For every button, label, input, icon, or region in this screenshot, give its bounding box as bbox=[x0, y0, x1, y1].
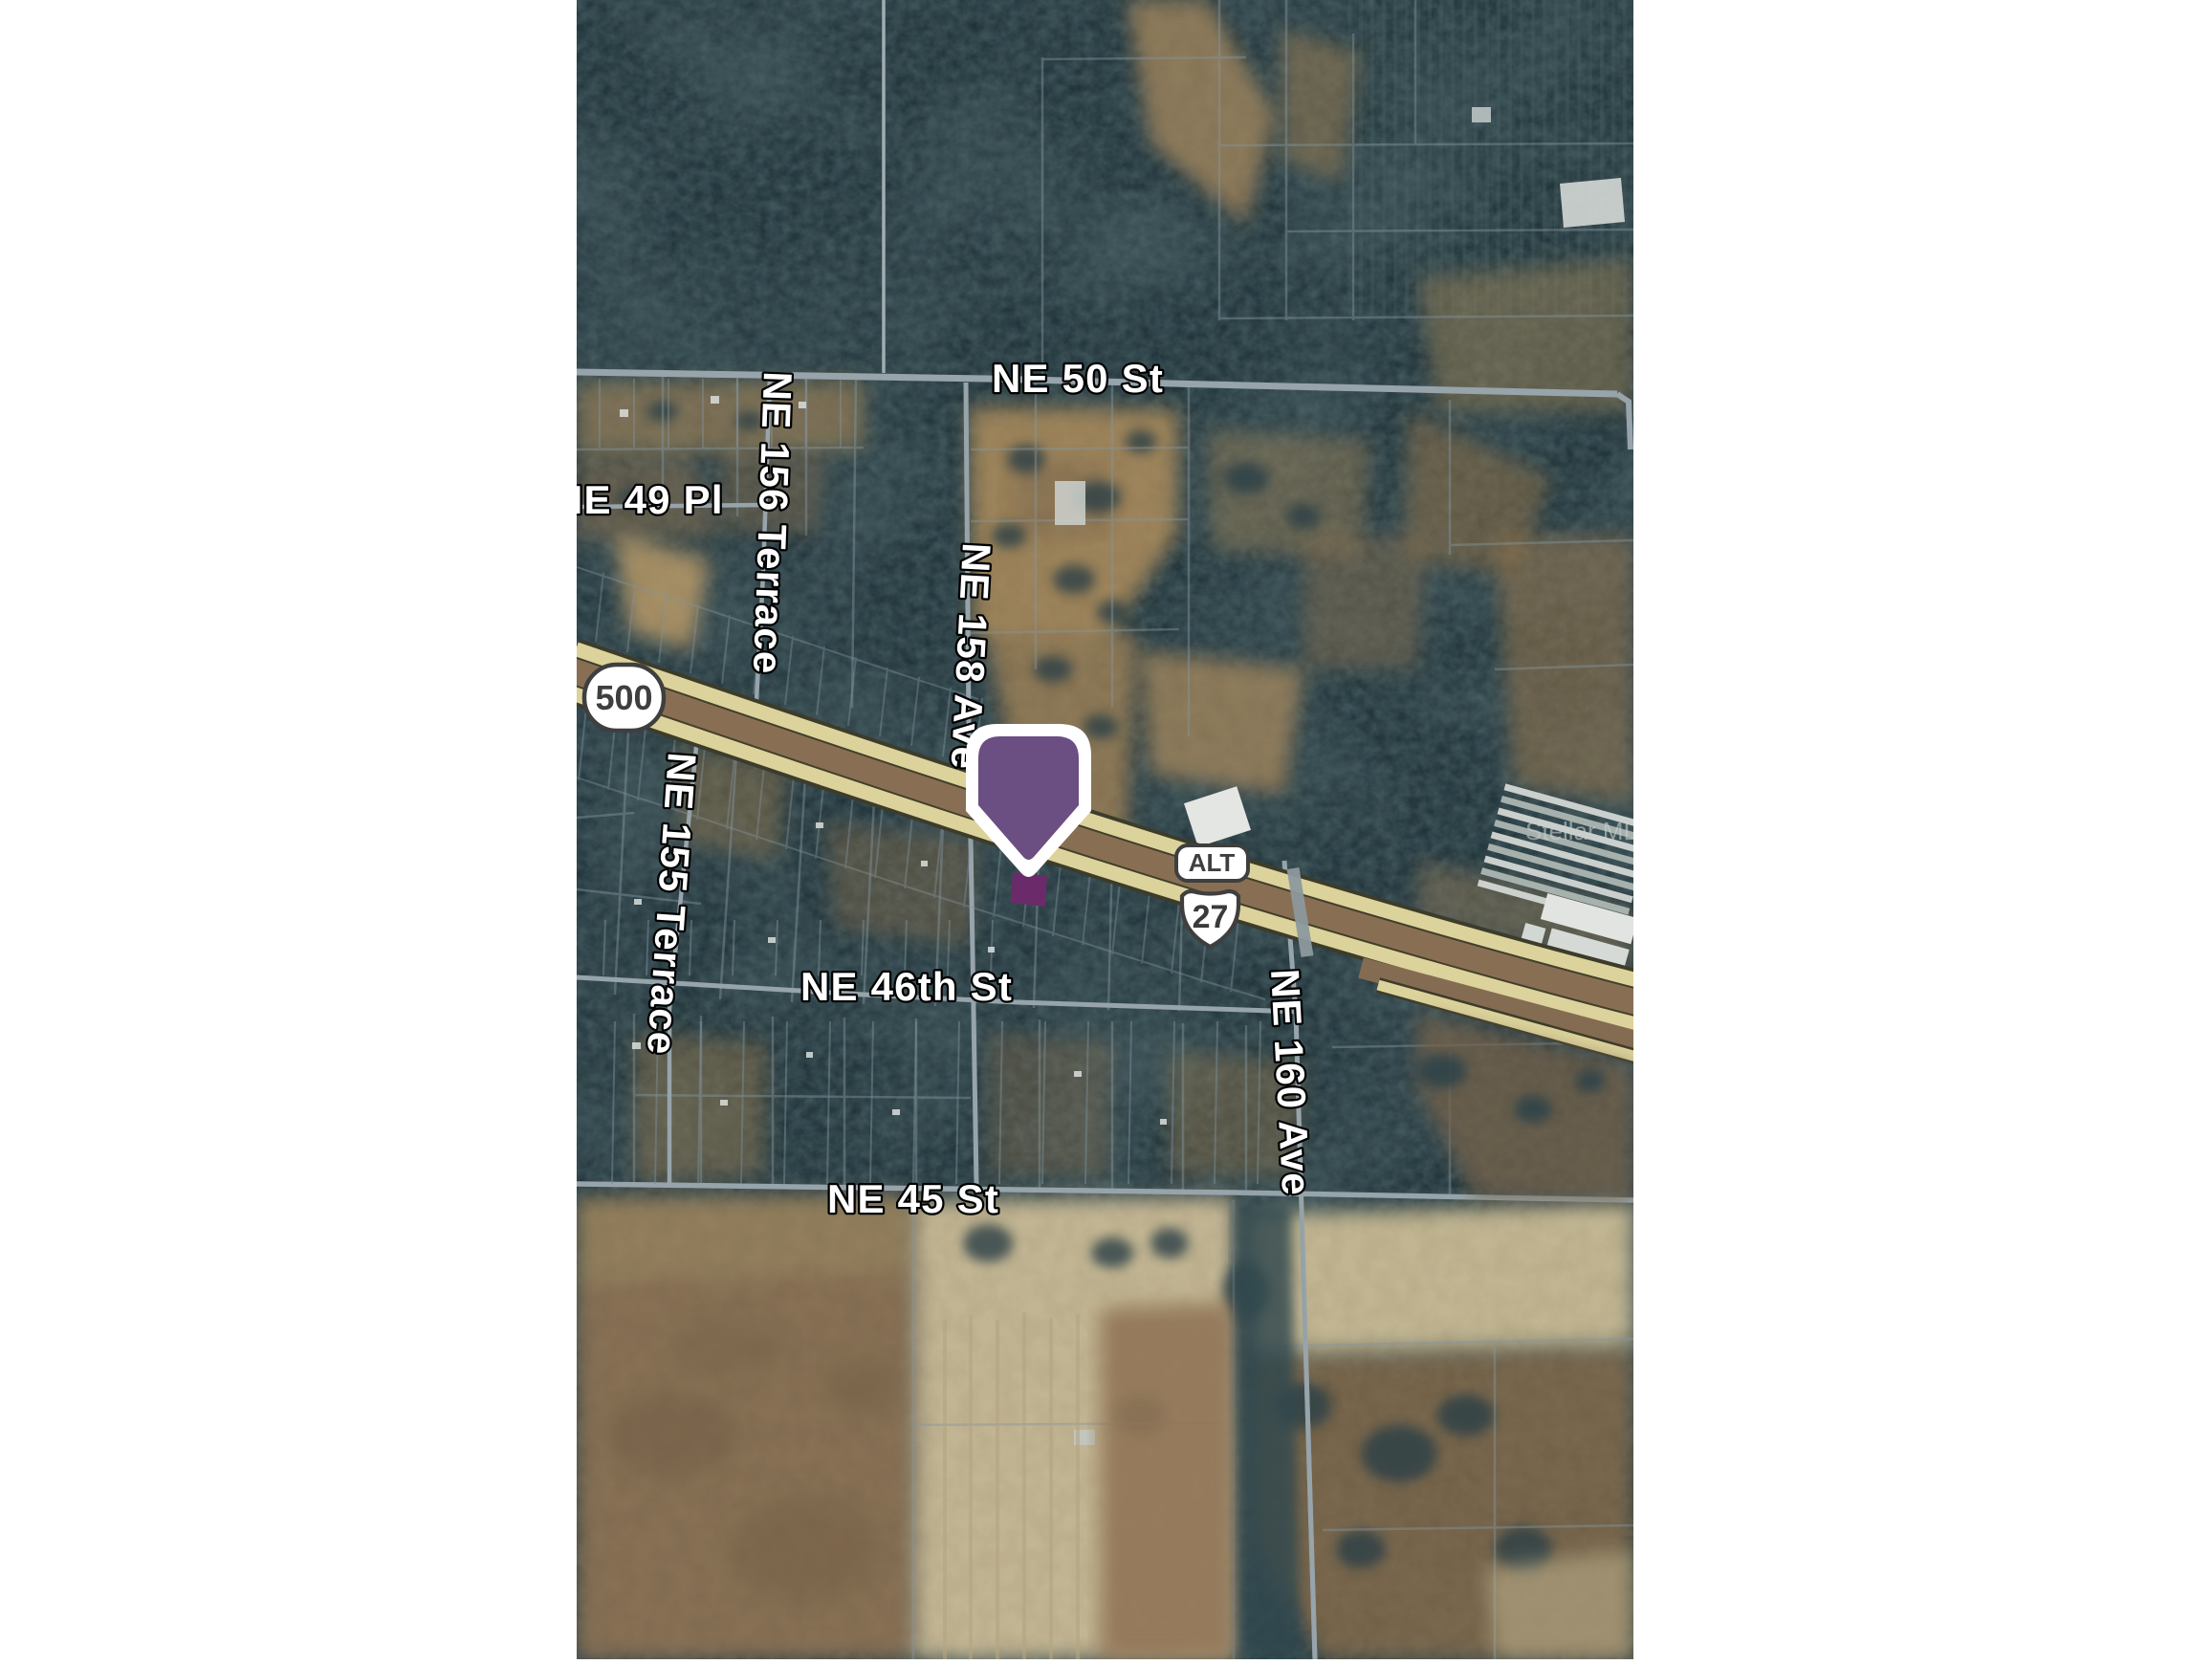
svg-text:NE 50 St: NE 50 St bbox=[992, 356, 1164, 401]
svg-text:NE 46th St: NE 46th St bbox=[800, 964, 1013, 1009]
svg-text:NE 49 Pl: NE 49 Pl bbox=[577, 477, 724, 522]
svg-text:ALT: ALT bbox=[1189, 848, 1236, 877]
svg-text:NE 45 St: NE 45 St bbox=[827, 1176, 999, 1221]
svg-text:Stellar MLS: Stellar MLS bbox=[1525, 817, 1633, 845]
svg-text:27: 27 bbox=[1193, 899, 1229, 935]
svg-text:500: 500 bbox=[595, 678, 652, 717]
